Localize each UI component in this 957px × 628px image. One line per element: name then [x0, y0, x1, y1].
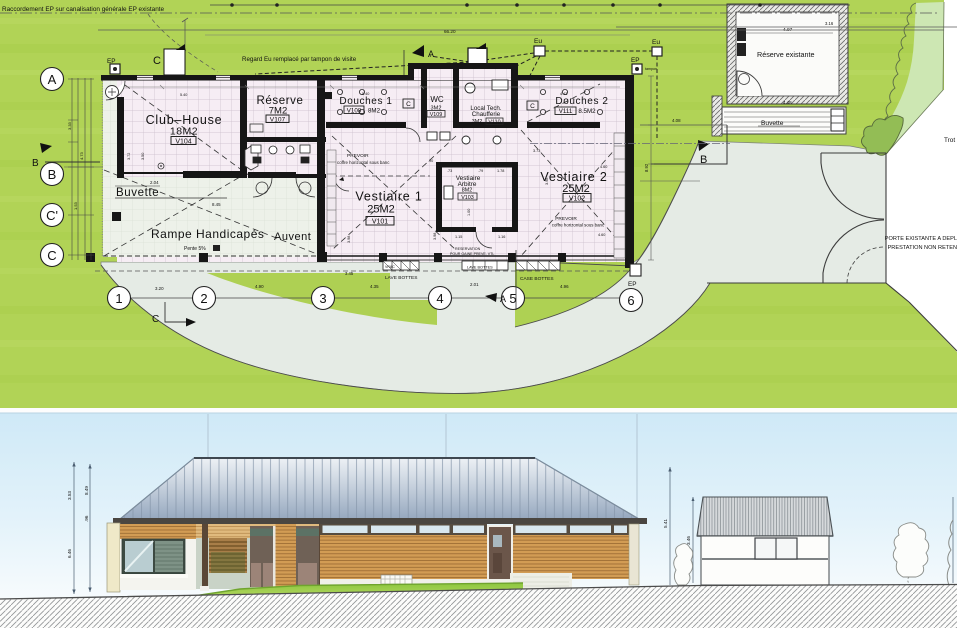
svg-text:1.15: 1.15: [439, 213, 443, 220]
svg-text:Vestiaire 1: Vestiaire 1: [355, 190, 422, 204]
svg-text:3.73: 3.73: [533, 149, 540, 153]
svg-text:4.35: 4.35: [370, 284, 379, 289]
svg-text:coffre horizontal sous banc: coffre horizontal sous banc: [552, 223, 605, 228]
svg-text:3.20: 3.20: [155, 286, 164, 291]
svg-text:LAVE BOTTES: LAVE BOTTES: [385, 275, 417, 281]
svg-text:LAVE BOTTES: LAVE BOTTES: [467, 266, 493, 270]
svg-text:8M2: 8M2: [368, 108, 381, 115]
svg-text:.79: .79: [478, 169, 483, 173]
svg-text:B: B: [32, 158, 39, 169]
svg-text:4.08: 4.08: [672, 118, 681, 123]
svg-text:C: C: [530, 103, 535, 110]
svg-text:V104: V104: [175, 139, 191, 146]
svg-text:Vestiaire 2: Vestiaire 2: [540, 170, 607, 184]
svg-text:3.33: 3.33: [67, 121, 72, 130]
svg-text:3: 3: [319, 291, 326, 306]
svg-text:RESERVATION: RESERVATION: [455, 247, 481, 251]
svg-text:4: 4: [436, 291, 443, 306]
svg-text:WC: WC: [430, 95, 444, 104]
svg-text:1.78: 1.78: [497, 169, 504, 173]
svg-text:V103: V103: [461, 195, 474, 201]
svg-text:3.45: 3.45: [345, 271, 354, 276]
svg-text:1.15: 1.15: [455, 235, 462, 239]
svg-text:4.60: 4.60: [598, 233, 605, 237]
svg-text:V107: V107: [270, 117, 286, 124]
svg-text:A: A: [48, 72, 57, 87]
svg-text:EP: EP: [631, 57, 640, 64]
svg-text:6.46: 6.46: [67, 549, 72, 558]
svg-text:POUR GAINE PREVE. VTL: POUR GAINE PREVE. VTL: [450, 252, 494, 256]
svg-text:.96: .96: [84, 515, 89, 522]
svg-text:C: C: [153, 55, 161, 67]
svg-text:3.98: 3.98: [545, 178, 549, 185]
svg-text:PORTE EXISTANTE A DEPL: PORTE EXISTANTE A DEPL: [885, 236, 957, 242]
svg-text:Regard Eu remplacé par tam: Regard Eu remplacé par tampon de visite: [242, 56, 357, 63]
svg-text:1: 1: [115, 291, 122, 306]
svg-text:Douches 1: Douches 1: [339, 96, 392, 107]
svg-text:5: 5: [509, 291, 516, 306]
svg-text:8.92: 8.92: [644, 163, 649, 172]
svg-text:A: A: [500, 294, 506, 304]
svg-text:PRESTATION NON RETEN: PRESTATION NON RETEN: [888, 245, 957, 251]
svg-text:Rampe Handicapés: Rampe Handicapés: [151, 227, 264, 241]
svg-text:V111: V111: [559, 108, 573, 115]
svg-text:C': C': [46, 208, 58, 223]
svg-text:Eu: Eu: [534, 38, 542, 45]
svg-text:66.20: 66.20: [444, 29, 456, 34]
svg-text:4.43: 4.43: [560, 92, 567, 96]
svg-text:Pente 5%: Pente 5%: [184, 246, 206, 252]
svg-text:Auvent: Auvent: [274, 231, 311, 243]
svg-text:5.40: 5.40: [180, 93, 187, 97]
svg-text:Douches 2: Douches 2: [555, 96, 608, 107]
svg-text:3.53: 3.53: [67, 491, 72, 500]
svg-text:C: C: [47, 248, 56, 263]
svg-text:1.16: 1.16: [498, 235, 505, 239]
svg-text:1.00: 1.00: [467, 209, 471, 216]
svg-text:PREVOIR: PREVOIR: [347, 153, 369, 159]
svg-text:18M2: 18M2: [170, 126, 198, 138]
svg-text:4.96: 4.96: [560, 284, 569, 289]
svg-text:B: B: [48, 167, 57, 182]
svg-text:25M2: 25M2: [367, 204, 395, 216]
svg-text:8.5M2: 8.5M2: [578, 108, 596, 115]
svg-text:8.49: 8.49: [84, 486, 89, 495]
svg-text:tampon: tampon: [645, 67, 657, 71]
svg-text:Trot: Trot: [944, 137, 955, 144]
svg-text:A: A: [428, 49, 434, 59]
svg-text:Chaufferie: Chaufferie: [472, 111, 501, 118]
svg-text:Raccordement EP sur canal: Raccordement EP sur canalisation général…: [2, 6, 165, 13]
svg-text:8.45: 8.45: [212, 202, 221, 207]
svg-text:V102: V102: [569, 196, 585, 203]
svg-text:4.60: 4.60: [600, 165, 607, 169]
svg-text:3.98: 3.98: [347, 236, 351, 243]
svg-text:V108: V108: [347, 108, 362, 115]
svg-text:3.50: 3.50: [141, 153, 145, 160]
svg-text:CASE BOTTES: CASE BOTTES: [520, 276, 554, 282]
svg-text:3.72: 3.72: [127, 153, 131, 160]
svg-text:5.41: 5.41: [663, 519, 668, 528]
svg-text:3M2: 3M2: [472, 119, 483, 125]
svg-text:VRAC: VRAC: [385, 265, 395, 269]
svg-text:6: 6: [627, 293, 634, 308]
svg-text:V109: V109: [430, 112, 443, 118]
svg-text:1.53: 1.53: [73, 201, 78, 210]
svg-text:Eu: Eu: [652, 39, 660, 46]
svg-text:2.04: 2.04: [150, 180, 159, 185]
svg-text:2: 2: [200, 291, 207, 306]
svg-text:EP: EP: [628, 281, 637, 288]
svg-text:3.46: 3.46: [686, 536, 691, 545]
svg-text:coffre horizontal sous banc: coffre horizontal sous banc: [337, 160, 390, 165]
svg-text:C: C: [406, 101, 411, 108]
svg-text:V110: V110: [488, 120, 500, 126]
svg-text:3.16: 3.16: [825, 21, 834, 26]
svg-text:Buvette: Buvette: [116, 187, 159, 199]
svg-text:4.73: 4.73: [79, 151, 84, 160]
svg-text:4.90: 4.90: [255, 284, 264, 289]
svg-text:C: C: [152, 314, 159, 325]
svg-text:V101: V101: [372, 219, 388, 226]
svg-text:.73: .73: [447, 169, 452, 173]
svg-text:5.40: 5.40: [362, 92, 369, 96]
svg-text:2.01: 2.01: [470, 282, 479, 287]
svg-text:3.98: 3.98: [433, 233, 437, 240]
svg-text:Réserve existante: Réserve existante: [757, 50, 815, 59]
svg-text:.90: .90: [428, 159, 433, 163]
svg-text:4.48: 4.48: [783, 100, 792, 105]
svg-text:PREVOIR: PREVOIR: [555, 216, 577, 222]
